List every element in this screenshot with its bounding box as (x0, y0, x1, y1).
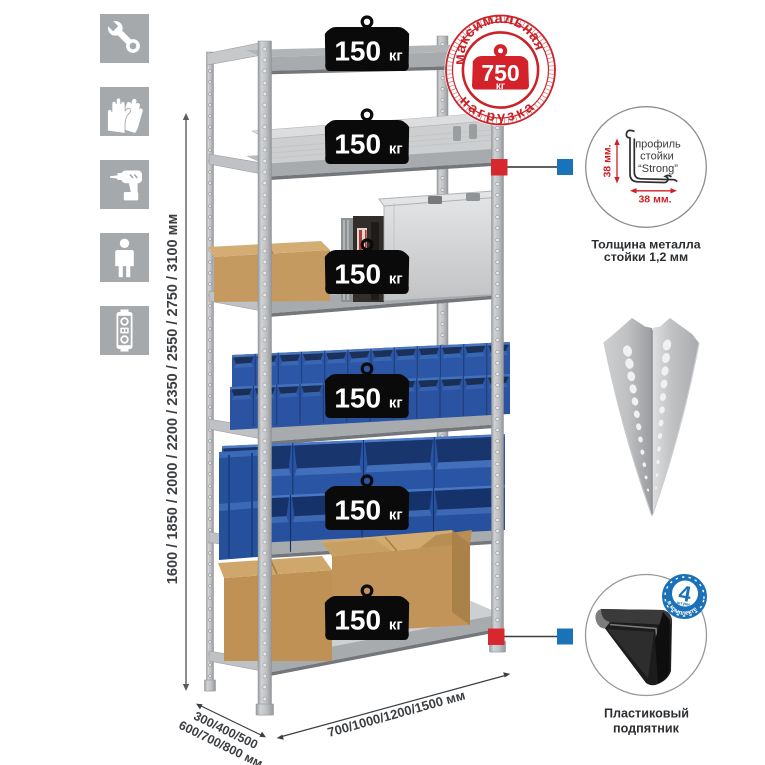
svg-text:700/1000/1200/1500 мм: 700/1000/1200/1500 мм (326, 687, 467, 739)
svg-text:38 мм.: 38 мм. (602, 144, 614, 177)
svg-text:кг: кг (496, 81, 505, 92)
svg-text:подпятник: подпятник (613, 722, 680, 736)
svg-text:38 мм.: 38 мм. (638, 194, 671, 206)
svg-text:Пластиковый: Пластиковый (604, 707, 689, 721)
svg-text:профиль: профиль (635, 139, 681, 151)
svg-text:1600 / 1850 / 2000 / 2200 / 23: 1600 / 1850 / 2000 / 2200 / 2350 / 2550 … (165, 214, 181, 585)
svg-text:стойки: стойки (640, 151, 674, 163)
svg-text:“Strong”: “Strong” (638, 163, 678, 175)
svg-text:стойки 1,2 мм: стойки 1,2 мм (604, 250, 688, 264)
